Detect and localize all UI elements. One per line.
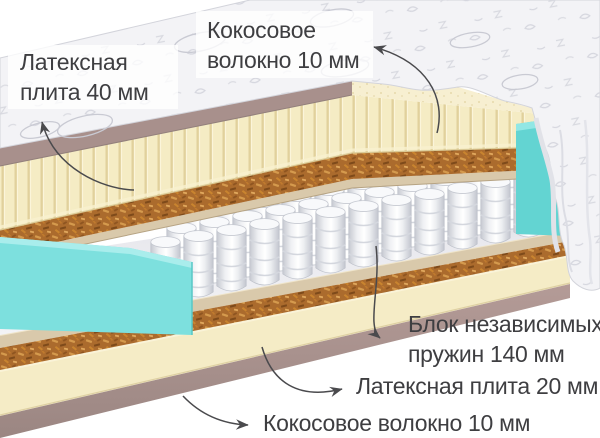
label-line: пружин 140 мм — [408, 339, 600, 369]
label-line: волокно 10 мм — [207, 45, 373, 75]
arrow-coir-bottom — [183, 396, 248, 425]
label-line: Кокосовое — [207, 15, 373, 45]
label-line: Кокосовое волокно 10 мм — [263, 408, 530, 438]
label-coir-bottom-layer: Кокосовое волокно 10 мм — [263, 408, 530, 438]
label-coir-top-layer: Кокосовое волокно 10 мм — [196, 11, 373, 78]
label-spring-block: Блок независимых пружин 140 мм — [408, 309, 600, 369]
label-latex-top-plate: Латексная плита 40 мм — [8, 45, 178, 109]
label-line: плита 40 мм — [20, 77, 178, 107]
label-latex-bottom-plate: Латексная плита 20 мм — [356, 371, 598, 401]
label-line: Блок независимых — [408, 309, 600, 339]
label-line: Латексная плита 20 мм — [356, 371, 598, 401]
label-line: Латексная — [20, 47, 178, 77]
mattress-cutaway-diagram: Латексная плита 40 мм Кокосовое волокно … — [0, 0, 600, 438]
